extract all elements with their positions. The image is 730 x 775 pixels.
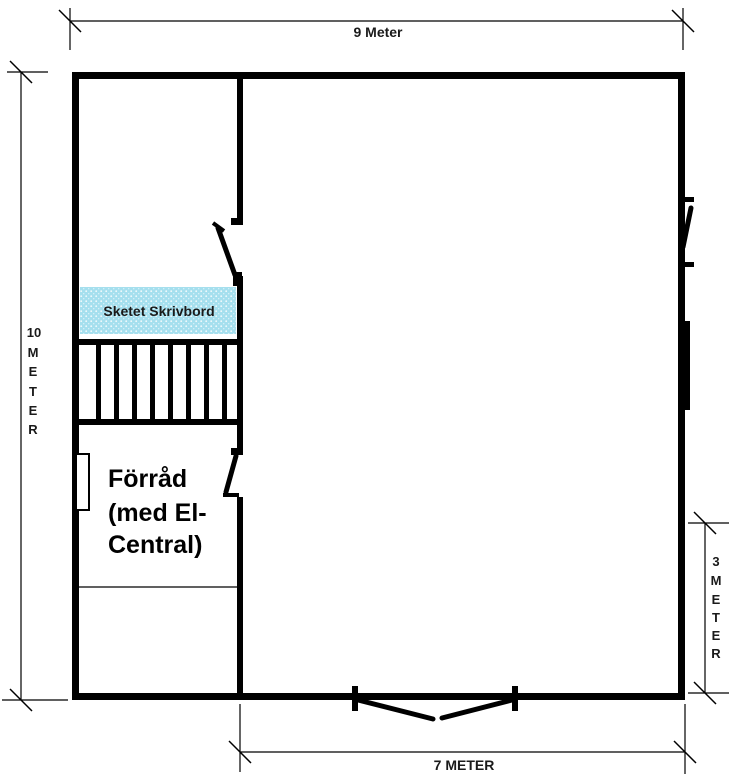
door-right-wall-tick-bottom bbox=[684, 262, 694, 267]
dimension-left-label-5: R bbox=[28, 422, 38, 437]
interior-wall-upper-stub bbox=[231, 218, 243, 225]
stairs-step bbox=[114, 344, 119, 420]
stairs-step bbox=[96, 344, 101, 420]
door-right-wall-tick-top bbox=[684, 197, 694, 202]
dimension-top: 9 Meter bbox=[59, 8, 694, 50]
wall-left bbox=[72, 72, 79, 700]
dimension-right-label-0: 3 bbox=[712, 554, 719, 569]
interior-wall bbox=[231, 72, 243, 700]
wall-top bbox=[72, 72, 685, 79]
right-wall-window-bar bbox=[681, 321, 690, 410]
interior-wall-middle bbox=[237, 276, 243, 453]
dimension-bottom-label: 7 METER bbox=[434, 757, 495, 773]
storage-room-label-line1: Förråd bbox=[108, 465, 187, 493]
stairs-step bbox=[222, 344, 227, 420]
stairs-step bbox=[150, 344, 155, 420]
stairs bbox=[79, 339, 237, 425]
door-symbols bbox=[213, 197, 694, 719]
desk: Sketet Skrivbord bbox=[80, 287, 236, 334]
door-double-leaf-left bbox=[358, 700, 433, 719]
door-storage-leaf bbox=[226, 456, 236, 492]
storage-room: Förråd (med El- Central) bbox=[76, 454, 237, 587]
door-storage bbox=[223, 456, 239, 495]
interior-wall-upper bbox=[237, 72, 243, 225]
desk-label: Sketet Skrivbord bbox=[103, 303, 214, 319]
wall-bottom bbox=[72, 693, 685, 700]
dimension-left-label-3: T bbox=[29, 384, 37, 399]
el-central-panel bbox=[76, 454, 89, 510]
dimension-left-label-2: E bbox=[29, 364, 38, 379]
dimension-right: 3 M E T E R bbox=[688, 512, 729, 704]
door-interior-upper-leaf bbox=[218, 228, 235, 275]
dimension-right-label-3: T bbox=[712, 610, 720, 625]
storage-room-label-line3: Central) bbox=[108, 531, 202, 559]
floor-plan-svg: 9 Meter 10 M E T E R 3 M E T E R 7 METER bbox=[0, 0, 730, 775]
dimension-right-label-1: M bbox=[711, 573, 722, 588]
outer-walls bbox=[72, 72, 685, 700]
dimension-left: 10 M E T E R bbox=[2, 61, 68, 711]
dimension-left-label-1: M bbox=[28, 345, 39, 360]
dimension-left-label-4: E bbox=[29, 403, 38, 418]
door-double-leaf-right bbox=[442, 700, 512, 718]
interior-wall-lower bbox=[237, 497, 243, 700]
door-interior-upper-foot bbox=[233, 272, 242, 286]
stairs-step bbox=[168, 344, 173, 420]
stairs-top-rail bbox=[79, 339, 237, 345]
floor-plan: 9 Meter 10 M E T E R 3 M E T E R 7 METER bbox=[0, 0, 730, 775]
stairs-step bbox=[186, 344, 191, 420]
stairs-bottom-rail bbox=[79, 419, 237, 425]
stairs-step bbox=[132, 344, 137, 420]
stairs-step bbox=[204, 344, 209, 420]
door-interior-upper bbox=[213, 223, 242, 286]
dimension-right-label-5: R bbox=[711, 646, 721, 661]
door-double-bottom bbox=[352, 686, 518, 719]
storage-room-label-line2: (med El- bbox=[108, 499, 207, 527]
dimension-top-label: 9 Meter bbox=[353, 24, 403, 40]
dimension-right-label-2: E bbox=[712, 592, 721, 607]
dimension-right-label-4: E bbox=[712, 628, 721, 643]
dimension-left-label-0: 10 bbox=[27, 325, 41, 340]
